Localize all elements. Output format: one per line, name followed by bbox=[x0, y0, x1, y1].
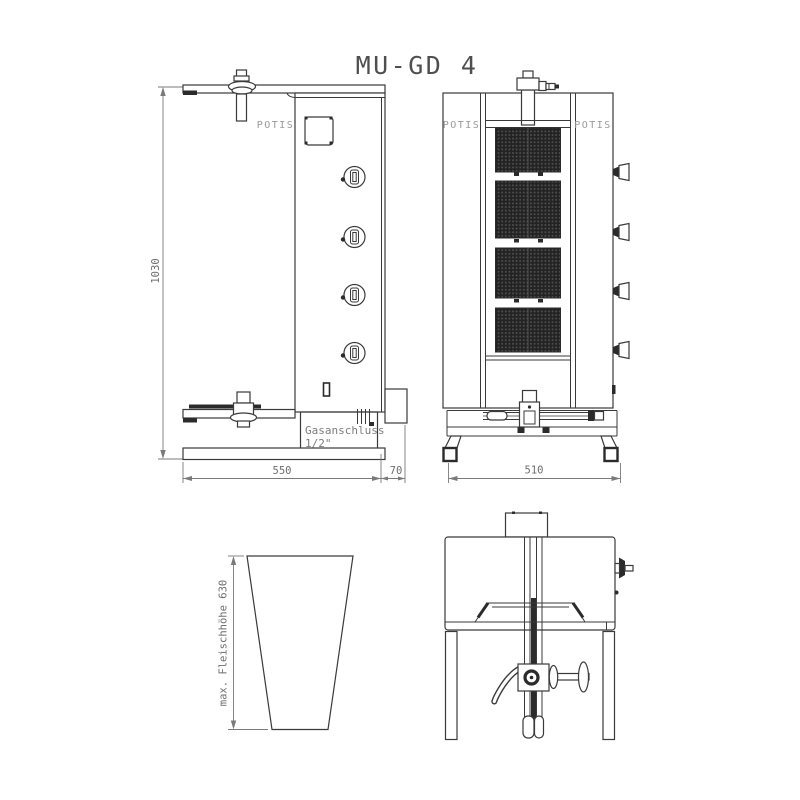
t-screw-icon bbox=[549, 662, 589, 692]
igniter-side-icon bbox=[612, 385, 616, 394]
top-spindle-icon bbox=[229, 70, 256, 121]
knob-side-icon bbox=[613, 342, 629, 359]
front-view: POTIS POTIS bbox=[443, 71, 629, 483]
igniter-icon bbox=[324, 383, 330, 396]
knob-side-icon bbox=[613, 164, 629, 181]
knob-side-icon bbox=[613, 224, 629, 241]
gas-connection-box: Gasanschluss 1/2" bbox=[301, 409, 385, 452]
foot-left bbox=[444, 448, 457, 461]
meat-cone-view: max. Fleischhöhe 630 bbox=[218, 556, 354, 730]
clamp-handle-icon bbox=[494, 668, 521, 702]
rear-box bbox=[385, 389, 407, 423]
dimension-meat-height: max. Fleischhöhe 630 bbox=[218, 556, 269, 730]
technical-drawing-page: MU-GD 4 1030 PO bbox=[0, 0, 800, 800]
brand-label-side: POTIS bbox=[257, 120, 295, 131]
side-body bbox=[287, 93, 385, 412]
drawing-title: MU-GD 4 bbox=[356, 51, 479, 80]
top-view-leg-left bbox=[446, 632, 458, 740]
bottom-support-arm bbox=[183, 392, 295, 427]
meat-cone-shape bbox=[247, 556, 353, 730]
dimension-width-510: 510 bbox=[449, 463, 621, 483]
top-view-dot bbox=[615, 591, 619, 595]
brand-label-front-left: POTIS bbox=[443, 120, 481, 131]
dim-height-label: 1030 bbox=[150, 258, 162, 283]
dim-meat-height-label: max. Fleischhöhe 630 bbox=[218, 580, 230, 706]
dim-depth-rear-label: 70 bbox=[390, 465, 403, 477]
mu-gd4-technical-drawing: MU-GD 4 1030 PO bbox=[0, 0, 800, 800]
base-plate bbox=[183, 448, 385, 460]
gas-connection-label-1: Gasanschluss bbox=[305, 424, 384, 437]
top-view-leg-right bbox=[603, 632, 615, 740]
top-view-knob-icon bbox=[615, 558, 633, 579]
control-knobs-front bbox=[613, 164, 629, 359]
foot-right bbox=[605, 448, 618, 461]
side-view: 1030 POTIS bbox=[150, 70, 407, 483]
brand-label-front-right: POTIS bbox=[574, 120, 612, 131]
dim-width-label: 510 bbox=[525, 465, 544, 477]
dimension-height-1030: 1030 bbox=[150, 87, 197, 459]
dim-depth-body-label: 550 bbox=[273, 465, 292, 477]
top-view-motor-box bbox=[506, 512, 548, 538]
top-view bbox=[445, 512, 633, 740]
knob-side-icon bbox=[613, 283, 629, 300]
